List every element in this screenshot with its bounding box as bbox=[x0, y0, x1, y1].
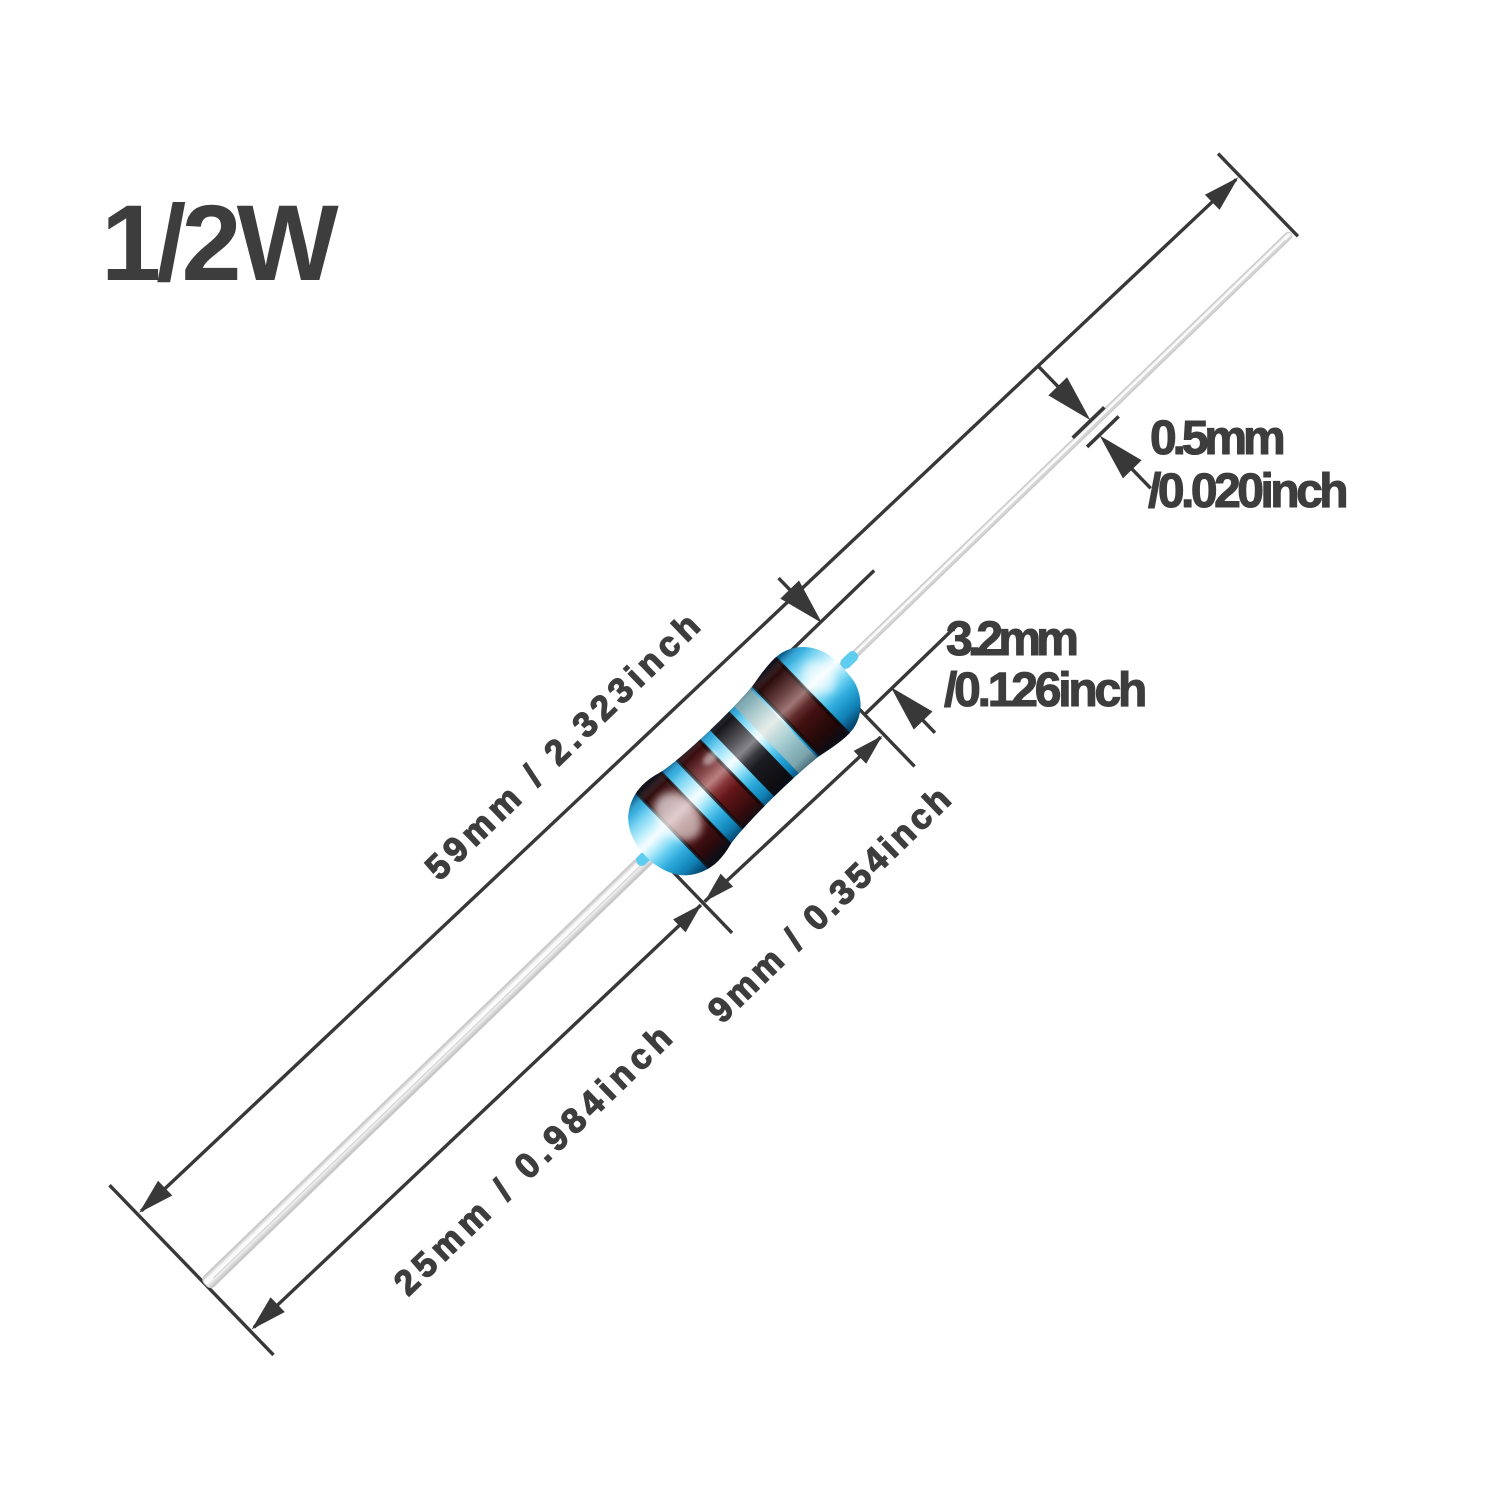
svg-text:1/2W: 1/2W bbox=[101, 182, 339, 303]
svg-text:0.5mm: 0.5mm bbox=[1150, 412, 1283, 465]
svg-text:/0.020inch: /0.020inch bbox=[1148, 465, 1346, 518]
svg-text:3.2mm: 3.2mm bbox=[946, 613, 1076, 666]
svg-text:/0.126inch: /0.126inch bbox=[944, 664, 1145, 717]
